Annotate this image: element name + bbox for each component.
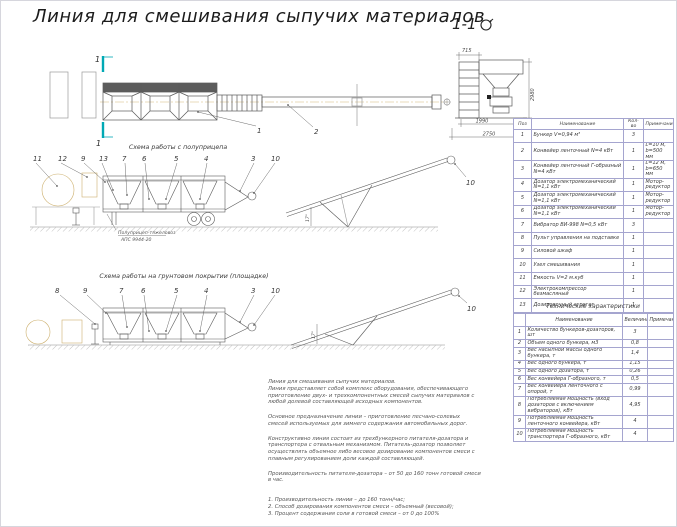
parts-row: 12 Электрокомпрессор безмасляный 1 xyxy=(514,286,674,299)
cell-pos: 8 xyxy=(514,232,532,245)
dim-2980: 2980 xyxy=(530,88,536,101)
parts-table: Поз Наименование Кол-во Примечание 1 Бун… xyxy=(513,118,674,313)
callout-4: 4 xyxy=(204,155,208,163)
plan-section-mark-top: 1 xyxy=(95,55,100,64)
cell-qty: 1 xyxy=(624,205,644,218)
cell-note xyxy=(648,347,674,360)
cell-pos: 9 xyxy=(514,245,532,258)
parts-header-row: Поз Наименование Кол-во Примечание xyxy=(514,119,674,130)
cell-note xyxy=(648,368,674,376)
cell-note xyxy=(644,232,674,245)
cell-pos: 4 xyxy=(514,178,532,191)
scheme-ground-drawing xyxy=(26,288,467,350)
notes-paragraph-1-body: Линия представляет собой комплекс оборуд… xyxy=(268,386,481,406)
specs-row: 8 Потребляемая мощность (вход дозаторов … xyxy=(514,396,674,415)
cell-note xyxy=(648,376,674,384)
cell-num: 10 xyxy=(514,428,526,441)
incline-angle-trailer: 17° xyxy=(305,214,311,222)
cell-note xyxy=(648,340,674,348)
cell-name: Конвейер ленточный Г-образный N=4 кВт xyxy=(532,161,624,179)
trailer-name: Полуприцеп-тяжеловоз xyxy=(118,230,176,236)
cell-name: Вес конвейера ленточного с опорой, т xyxy=(526,383,623,396)
plan-callout-hopper: 1 xyxy=(257,127,261,135)
callout-3: 3 xyxy=(251,155,255,163)
specs-header-row: Наименование Величина Примечание xyxy=(514,314,674,327)
callout-9: 9 xyxy=(81,155,86,163)
dim-2750: 2750 xyxy=(483,132,496,138)
callout-8: 8 xyxy=(55,287,60,295)
cell-num: 6 xyxy=(514,376,526,384)
notes-specs-list: 1. Производительность линии – до 160 тон… xyxy=(268,497,481,517)
notes-paragraph-1: Линия для смешивания сыпучих материалов.… xyxy=(268,379,481,406)
specs-row: 10 Потребляемая мощность транспортера Г-… xyxy=(514,428,674,441)
parts-col-note: Примечание xyxy=(644,119,674,130)
description-notes: Линия для смешивания сыпучих материалов.… xyxy=(268,379,481,517)
parts-row: 5 Дозатор электромеханический N=1,1 кВт … xyxy=(514,192,674,205)
cell-qty: 3 xyxy=(624,219,644,232)
specs-table: Наименование Величина Примечание 1 Колич… xyxy=(513,313,674,442)
cell-name: Вес конвейера Г-образного, т xyxy=(526,376,623,384)
notes-intro-line: Линия для смешивания сыпучих материалов. xyxy=(268,379,481,386)
specs-row: 1 Количество бункеров-дозаторов, шт 3 xyxy=(514,327,674,340)
parts-col-pos: Поз xyxy=(514,119,532,130)
parts-row: 4 Дозатор электромеханический N=1,1 кВт … xyxy=(514,178,674,191)
cell-note xyxy=(644,286,674,299)
notes-list-item-2: 2. Способ дозирования компонентов смеси … xyxy=(268,504,481,511)
cell-note xyxy=(648,327,674,340)
callout-10: 10 xyxy=(271,155,280,163)
cell-qty: 1 xyxy=(624,259,644,272)
cell-note: L=12 м, b=650 мм xyxy=(644,161,674,179)
cell-pos: 5 xyxy=(514,192,532,205)
callout-11: 11 xyxy=(33,155,42,163)
specs-row: 3 Вес насыпной массы одного бункера, т 1… xyxy=(514,347,674,360)
callout-10: 10 xyxy=(271,287,280,295)
callout-13: 13 xyxy=(99,155,108,163)
plan-callout-conveyor: 2 xyxy=(314,128,319,136)
callout-9: 9 xyxy=(83,287,88,295)
cell-note xyxy=(644,259,674,272)
cell-value: 4 xyxy=(623,428,648,441)
parts-col-name: Наименование xyxy=(532,119,624,130)
cell-pos: 6 xyxy=(514,205,532,218)
specs-row: 4 Вес одного бункера, т 1,15 xyxy=(514,360,674,368)
callout-6: 6 xyxy=(142,155,147,163)
cell-qty: 1 xyxy=(624,232,644,245)
cell-qty: 3 xyxy=(624,130,644,143)
specs-col-value: Величина xyxy=(623,314,648,327)
cell-pos: 2 xyxy=(514,143,532,161)
dim-1990: 1990 xyxy=(476,119,489,125)
trailer-model: АПС 9944-20 xyxy=(120,237,152,243)
cell-num: 5 xyxy=(514,368,526,376)
cell-name: Вибратор ВИ-998 N=0,5 кВт xyxy=(532,219,624,232)
cell-num: 1 xyxy=(514,327,526,340)
dim-715: 715 xyxy=(462,48,472,54)
cell-name: Электрокомпрессор безмасляный xyxy=(532,286,624,299)
cell-note xyxy=(648,396,674,415)
cell-name: Вес одного бункера, т xyxy=(526,360,623,368)
scheme-trailer-drawing xyxy=(30,156,466,236)
cell-value: 1,15 xyxy=(623,360,648,368)
cell-qty: 1 xyxy=(624,272,644,285)
cell-qty: 1 xyxy=(624,245,644,258)
cell-name: Дозатор электромеханический N=1,1 кВт xyxy=(532,192,624,205)
scheme-trailer-label: Схема работы с полуприцепа xyxy=(129,143,228,151)
cell-pos: 11 xyxy=(514,272,532,285)
cell-name: Потребляемая мощность транспортера Г-обр… xyxy=(526,428,623,441)
cell-name: Конвейер ленточный N=4 кВт xyxy=(532,143,624,161)
specs-row: 5 Вес одного дозатора, т 0,26 xyxy=(514,368,674,376)
callout-6: 6 xyxy=(141,287,146,295)
cell-value: 4,95 xyxy=(623,396,648,415)
cell-note xyxy=(644,219,674,232)
callout-12: 12 xyxy=(58,155,67,163)
specs-row: 7 Вес конвейера ленточного с опорой, т 0… xyxy=(514,383,674,396)
cell-name: Емкость V=2 м.куб xyxy=(532,272,624,285)
parts-row: 6 Дозатор электромеханический N=1,1 кВт … xyxy=(514,205,674,218)
callout-3: 3 xyxy=(251,287,255,295)
cell-note xyxy=(648,428,674,441)
cell-value: 0,8 xyxy=(623,340,648,348)
cell-qty: 1 xyxy=(624,192,644,205)
cell-note xyxy=(648,383,674,396)
specs-row: 6 Вес конвейера Г-образного, т 0,5 xyxy=(514,376,674,384)
specs-col-num xyxy=(514,314,526,327)
cell-name: Вес одного дозатора, т xyxy=(526,368,623,376)
cell-name: Дозатор электромеханический N=1,1 кВт xyxy=(532,205,624,218)
parts-row: 1 Бункер V=0,94 м³ 3 xyxy=(514,130,674,143)
callout-7: 7 xyxy=(122,155,127,163)
incline-angle-ground: 17° xyxy=(311,331,317,339)
cell-note xyxy=(644,272,674,285)
callout-5: 5 xyxy=(174,287,179,295)
cell-name: Пульт управления на подставке xyxy=(532,232,624,245)
callout-7: 7 xyxy=(119,287,124,295)
callout-4: 4 xyxy=(204,287,208,295)
parts-row: 2 Конвейер ленточный N=4 кВт 1 L=10 м, b… xyxy=(514,143,674,161)
callout-5: 5 xyxy=(174,155,179,163)
cell-num: 2 xyxy=(514,340,526,348)
specs-col-name: Наименование xyxy=(526,314,623,327)
specs-table-title: Технические характеристики xyxy=(513,303,673,310)
notes-list-item-1: 1. Производительность линии – до 160 тон… xyxy=(268,497,481,504)
cell-value: 0,99 xyxy=(623,383,648,396)
cell-pos: 3 xyxy=(514,161,532,179)
cell-name: Дозатор электромеханический N=1,1 кВт xyxy=(532,178,624,191)
specs-col-note: Примечание xyxy=(648,314,674,327)
cell-pos: 12 xyxy=(514,286,532,299)
cell-name: Узел смешивания xyxy=(532,259,624,272)
cell-name: Вес насыпной массы одного бункера, т xyxy=(526,347,623,360)
cell-name: Потребляемая мощность (вход дозаторов с … xyxy=(526,396,623,415)
notes-paragraph-2: Основное предназначение линии – приготов… xyxy=(268,414,481,428)
cell-value: 4 xyxy=(623,415,648,428)
cell-name: Силовой шкаф xyxy=(532,245,624,258)
cell-note: Мотор-редуктор xyxy=(644,192,674,205)
cell-qty: 1 xyxy=(624,286,644,299)
cell-num: 8 xyxy=(514,396,526,415)
notes-paragraph-3: Конструктивно линия состоит из трехбунке… xyxy=(268,436,481,463)
parts-row: 10 Узел смешивания 1 xyxy=(514,259,674,272)
cell-note: L=10 м, b=500 мм xyxy=(644,143,674,161)
specs-row: 9 Потребляемая мощность ленточного конве… xyxy=(514,415,674,428)
cell-value: 0,26 xyxy=(623,368,648,376)
cell-note xyxy=(644,130,674,143)
cell-pos: 1 xyxy=(514,130,532,143)
parts-col-qty: Кол-во xyxy=(624,119,644,130)
cell-qty: 1 xyxy=(624,178,644,191)
cell-num: 9 xyxy=(514,415,526,428)
parts-row: 7 Вибратор ВИ-998 N=0,5 кВт 3 xyxy=(514,219,674,232)
cell-note: Мотор-редуктор xyxy=(644,178,674,191)
cell-num: 4 xyxy=(514,360,526,368)
plan-view xyxy=(50,56,451,138)
cell-name: Объем одного бункера, м3 xyxy=(526,340,623,348)
cell-name: Количество бункеров-дозаторов, шт xyxy=(526,327,623,340)
specs-row: 2 Объем одного бункера, м3 0,8 xyxy=(514,340,674,348)
parts-row: 3 Конвейер ленточный Г-образный N=4 кВт … xyxy=(514,161,674,179)
cell-note xyxy=(648,415,674,428)
parts-row: 9 Силовой шкаф 1 xyxy=(514,245,674,258)
cell-name: Потребляемая мощность ленточного конвейе… xyxy=(526,415,623,428)
cell-pos: 10 xyxy=(514,259,532,272)
notes-list-item-3: 3. Процент содержания соли в готовой сме… xyxy=(268,511,481,518)
cell-value: 0,5 xyxy=(623,376,648,384)
cell-value: 1,4 xyxy=(623,347,648,360)
cell-qty: 1 xyxy=(624,143,644,161)
cell-pos: 7 xyxy=(514,219,532,232)
cell-name: Бункер V=0,94 м³ xyxy=(532,130,624,143)
notes-paragraph-4: Производительность питателя-дозатора – о… xyxy=(268,471,481,485)
cell-note xyxy=(644,245,674,258)
cell-num: 7 xyxy=(514,383,526,396)
cell-value: 3 xyxy=(623,327,648,340)
cell-qty: 1 xyxy=(624,161,644,179)
cell-note xyxy=(648,360,674,368)
parts-row: 8 Пульт управления на подставке 1 xyxy=(514,232,674,245)
plan-section-mark-bottom: 1 xyxy=(96,139,101,148)
callout-10-conveyor: 10 xyxy=(467,305,476,313)
cell-num: 3 xyxy=(514,347,526,360)
scheme-ground-label: Схема работы на грунтовом покрытии (площ… xyxy=(99,272,268,280)
parts-row: 11 Емкость V=2 м.куб 1 xyxy=(514,272,674,285)
cell-note: Мотор-редуктор xyxy=(644,205,674,218)
callout-10-conveyor: 10 xyxy=(466,179,475,187)
